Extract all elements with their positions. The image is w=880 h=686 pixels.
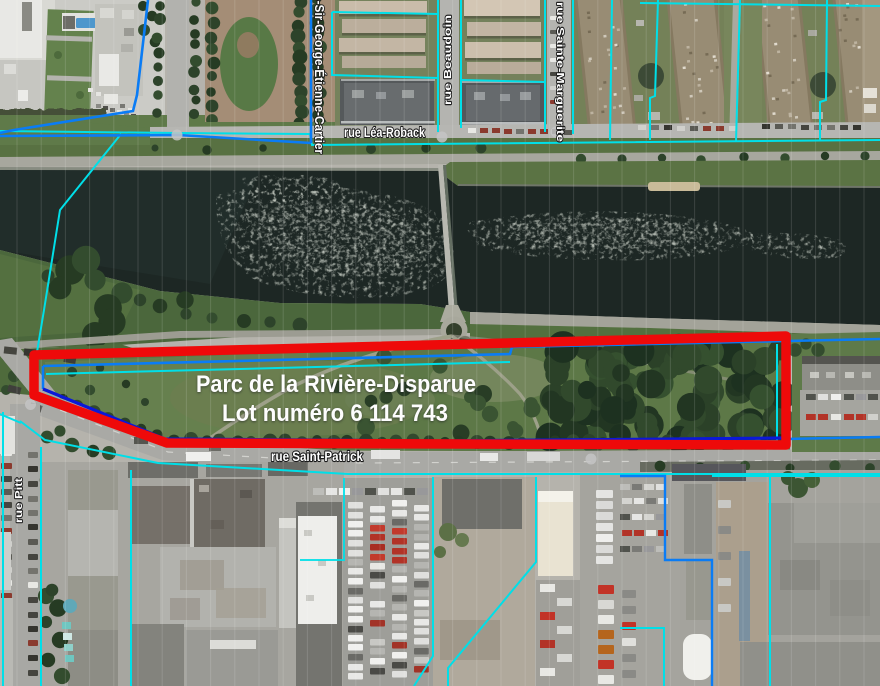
svg-text:Parc de la Rivière-Disparue: Parc de la Rivière-Disparue bbox=[196, 371, 476, 398]
svg-text:rue Léa-Roback: rue Léa-Roback bbox=[344, 124, 425, 140]
svg-text:rue Pitt: rue Pitt bbox=[13, 477, 25, 523]
svg-text:e-Sir-George-Étienne-Cartier: e-Sir-George-Étienne-Cartier bbox=[312, 0, 327, 154]
svg-text:rue Sainte-Marguerite: rue Sainte-Marguerite bbox=[554, 2, 566, 142]
svg-text:rue Beaudoin: rue Beaudoin bbox=[442, 15, 454, 105]
svg-text:Lot numéro 6 114 743: Lot numéro 6 114 743 bbox=[222, 400, 448, 427]
svg-text:rue Saint-Patrick: rue Saint-Patrick bbox=[271, 449, 363, 464]
